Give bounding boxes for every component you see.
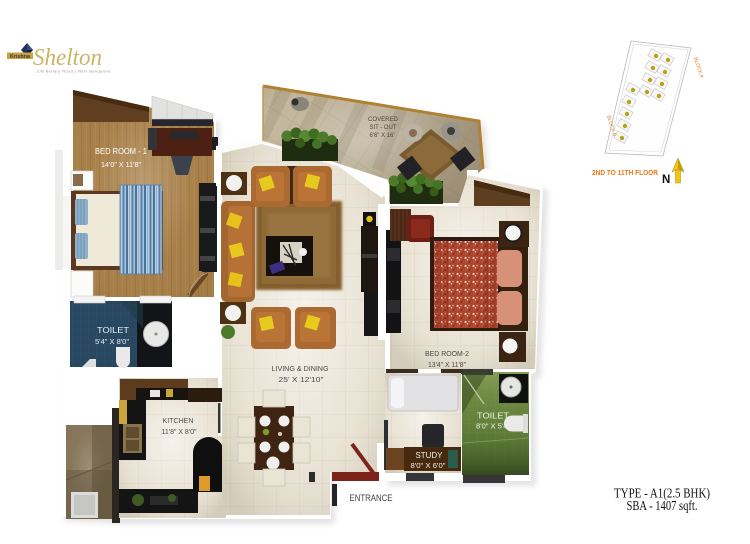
svg-text:STUDY: STUDY: [416, 451, 444, 460]
svg-text:8'0" X 5'4": 8'0" X 5'4": [476, 422, 510, 431]
svg-text:COVERED: COVERED: [368, 116, 398, 123]
svg-text:13'4" X 11'8": 13'4" X 11'8": [428, 360, 466, 369]
svg-text:TOILET: TOILET: [97, 325, 129, 335]
svg-text:5'4" X 8'0": 5'4" X 8'0": [95, 337, 129, 346]
svg-text:SIT - OUT: SIT - OUT: [370, 124, 397, 131]
svg-text:BED ROOM-2: BED ROOM-2: [425, 349, 469, 358]
svg-text:25' X 12'10": 25' X 12'10": [279, 375, 324, 384]
svg-text:Shelton: Shelton: [33, 45, 102, 71]
svg-text:6'6" X 16': 6'6" X 16': [370, 133, 395, 139]
svg-text:ENTRANCE: ENTRANCE: [350, 493, 393, 503]
svg-text:14'0" X 11'8": 14'0" X 11'8": [101, 160, 141, 169]
svg-text:TOILET: TOILET: [477, 411, 509, 421]
svg-text:LIVING & DINING: LIVING & DINING: [272, 364, 329, 373]
svg-text:8'0" X 6'0": 8'0" X 6'0": [411, 461, 446, 470]
svg-text:N: N: [662, 174, 670, 186]
svg-text:2/B Bellary Road | Next Bangal: 2/B Bellary Road | Next Bangalore: [37, 69, 111, 74]
svg-text:Krishna: Krishna: [10, 54, 30, 60]
svg-text:2ND TO 11TH FLOOR: 2ND TO 11TH FLOOR: [592, 170, 658, 177]
svg-text:SBA - 1407 sqft.: SBA - 1407 sqft.: [627, 498, 698, 513]
svg-text:11'8" X 8'0": 11'8" X 8'0": [162, 429, 198, 436]
svg-text:BED ROOM - 1: BED ROOM - 1: [95, 147, 148, 156]
svg-text:KITCHEN: KITCHEN: [163, 416, 194, 425]
